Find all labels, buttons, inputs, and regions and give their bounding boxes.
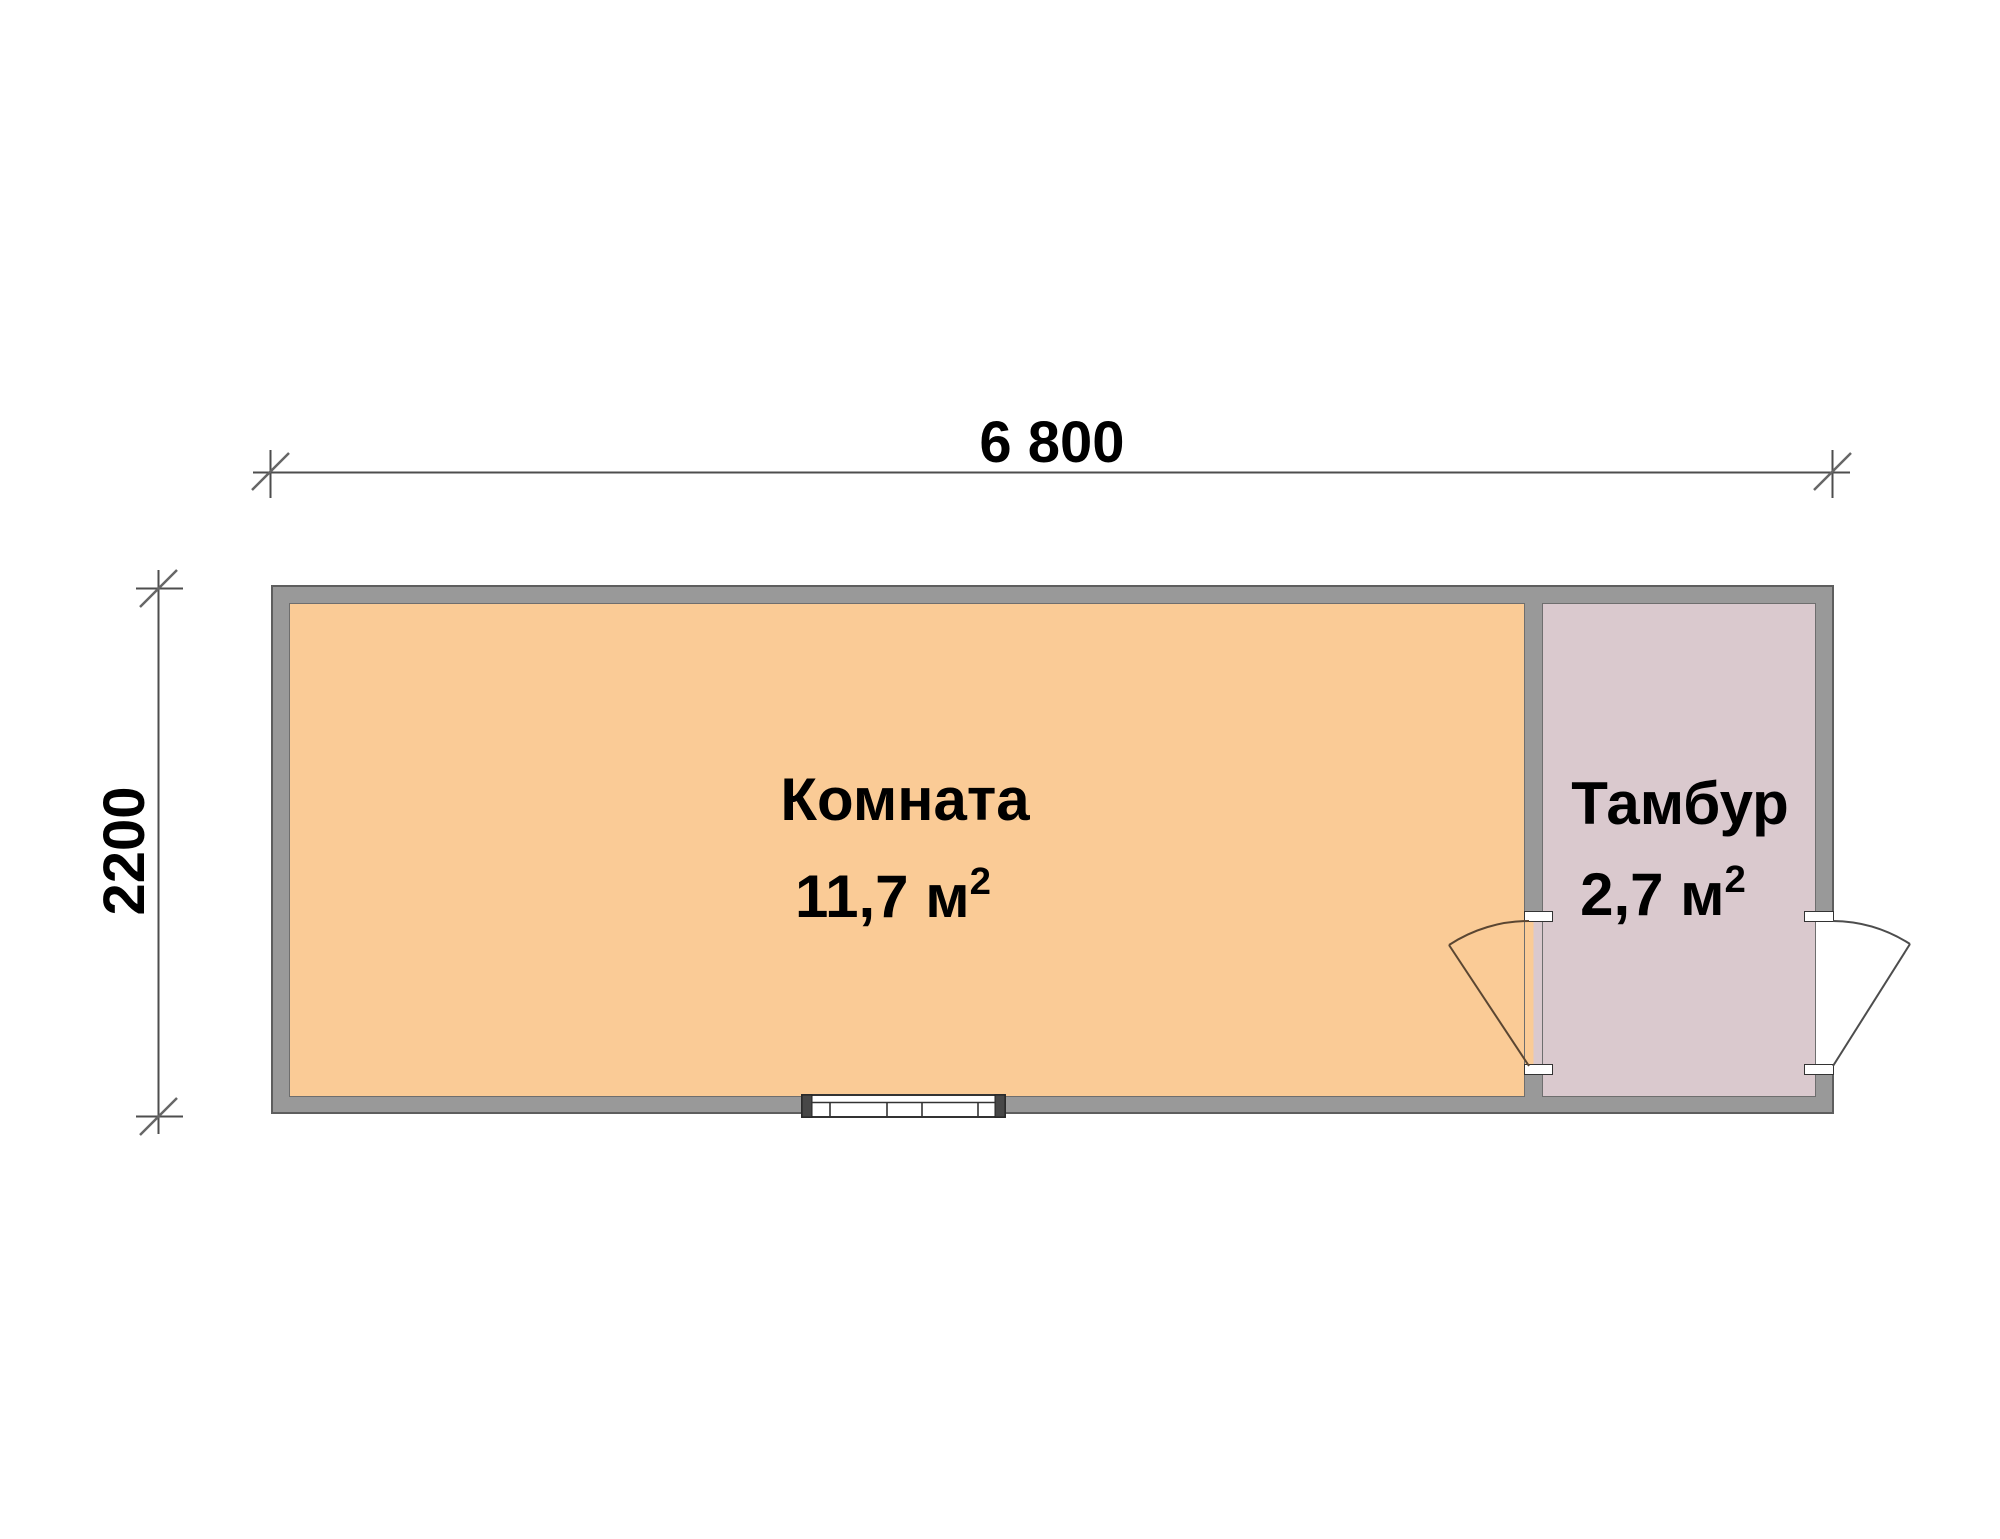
interior-door-swing [1449,921,1529,1066]
room-vestibule-area: 2,7 м2 [1580,863,1746,925]
room-vestibule-name: Тамбур [1571,774,1789,834]
room-main-area-sup: 2 [970,860,991,903]
room-main-area-value: 11,7 м [795,863,970,930]
entrance-door-swing [1833,921,1910,1066]
floor-plan-canvas: 6 800 2200 Комната 11,7 м2 Тамбур 2,7 м2 [0,0,2000,1539]
room-main-name: Комната [780,770,1029,830]
window-symbol [802,1095,1005,1117]
width-dimension-label: 6 800 [979,414,1124,472]
height-dimension-label: 2200 [96,786,154,915]
room-vestibule-area-value: 2,7 м [1580,861,1724,928]
room-main-area: 11,7 м2 [795,865,991,927]
room-vestibule-area-sup: 2 [1725,858,1746,901]
